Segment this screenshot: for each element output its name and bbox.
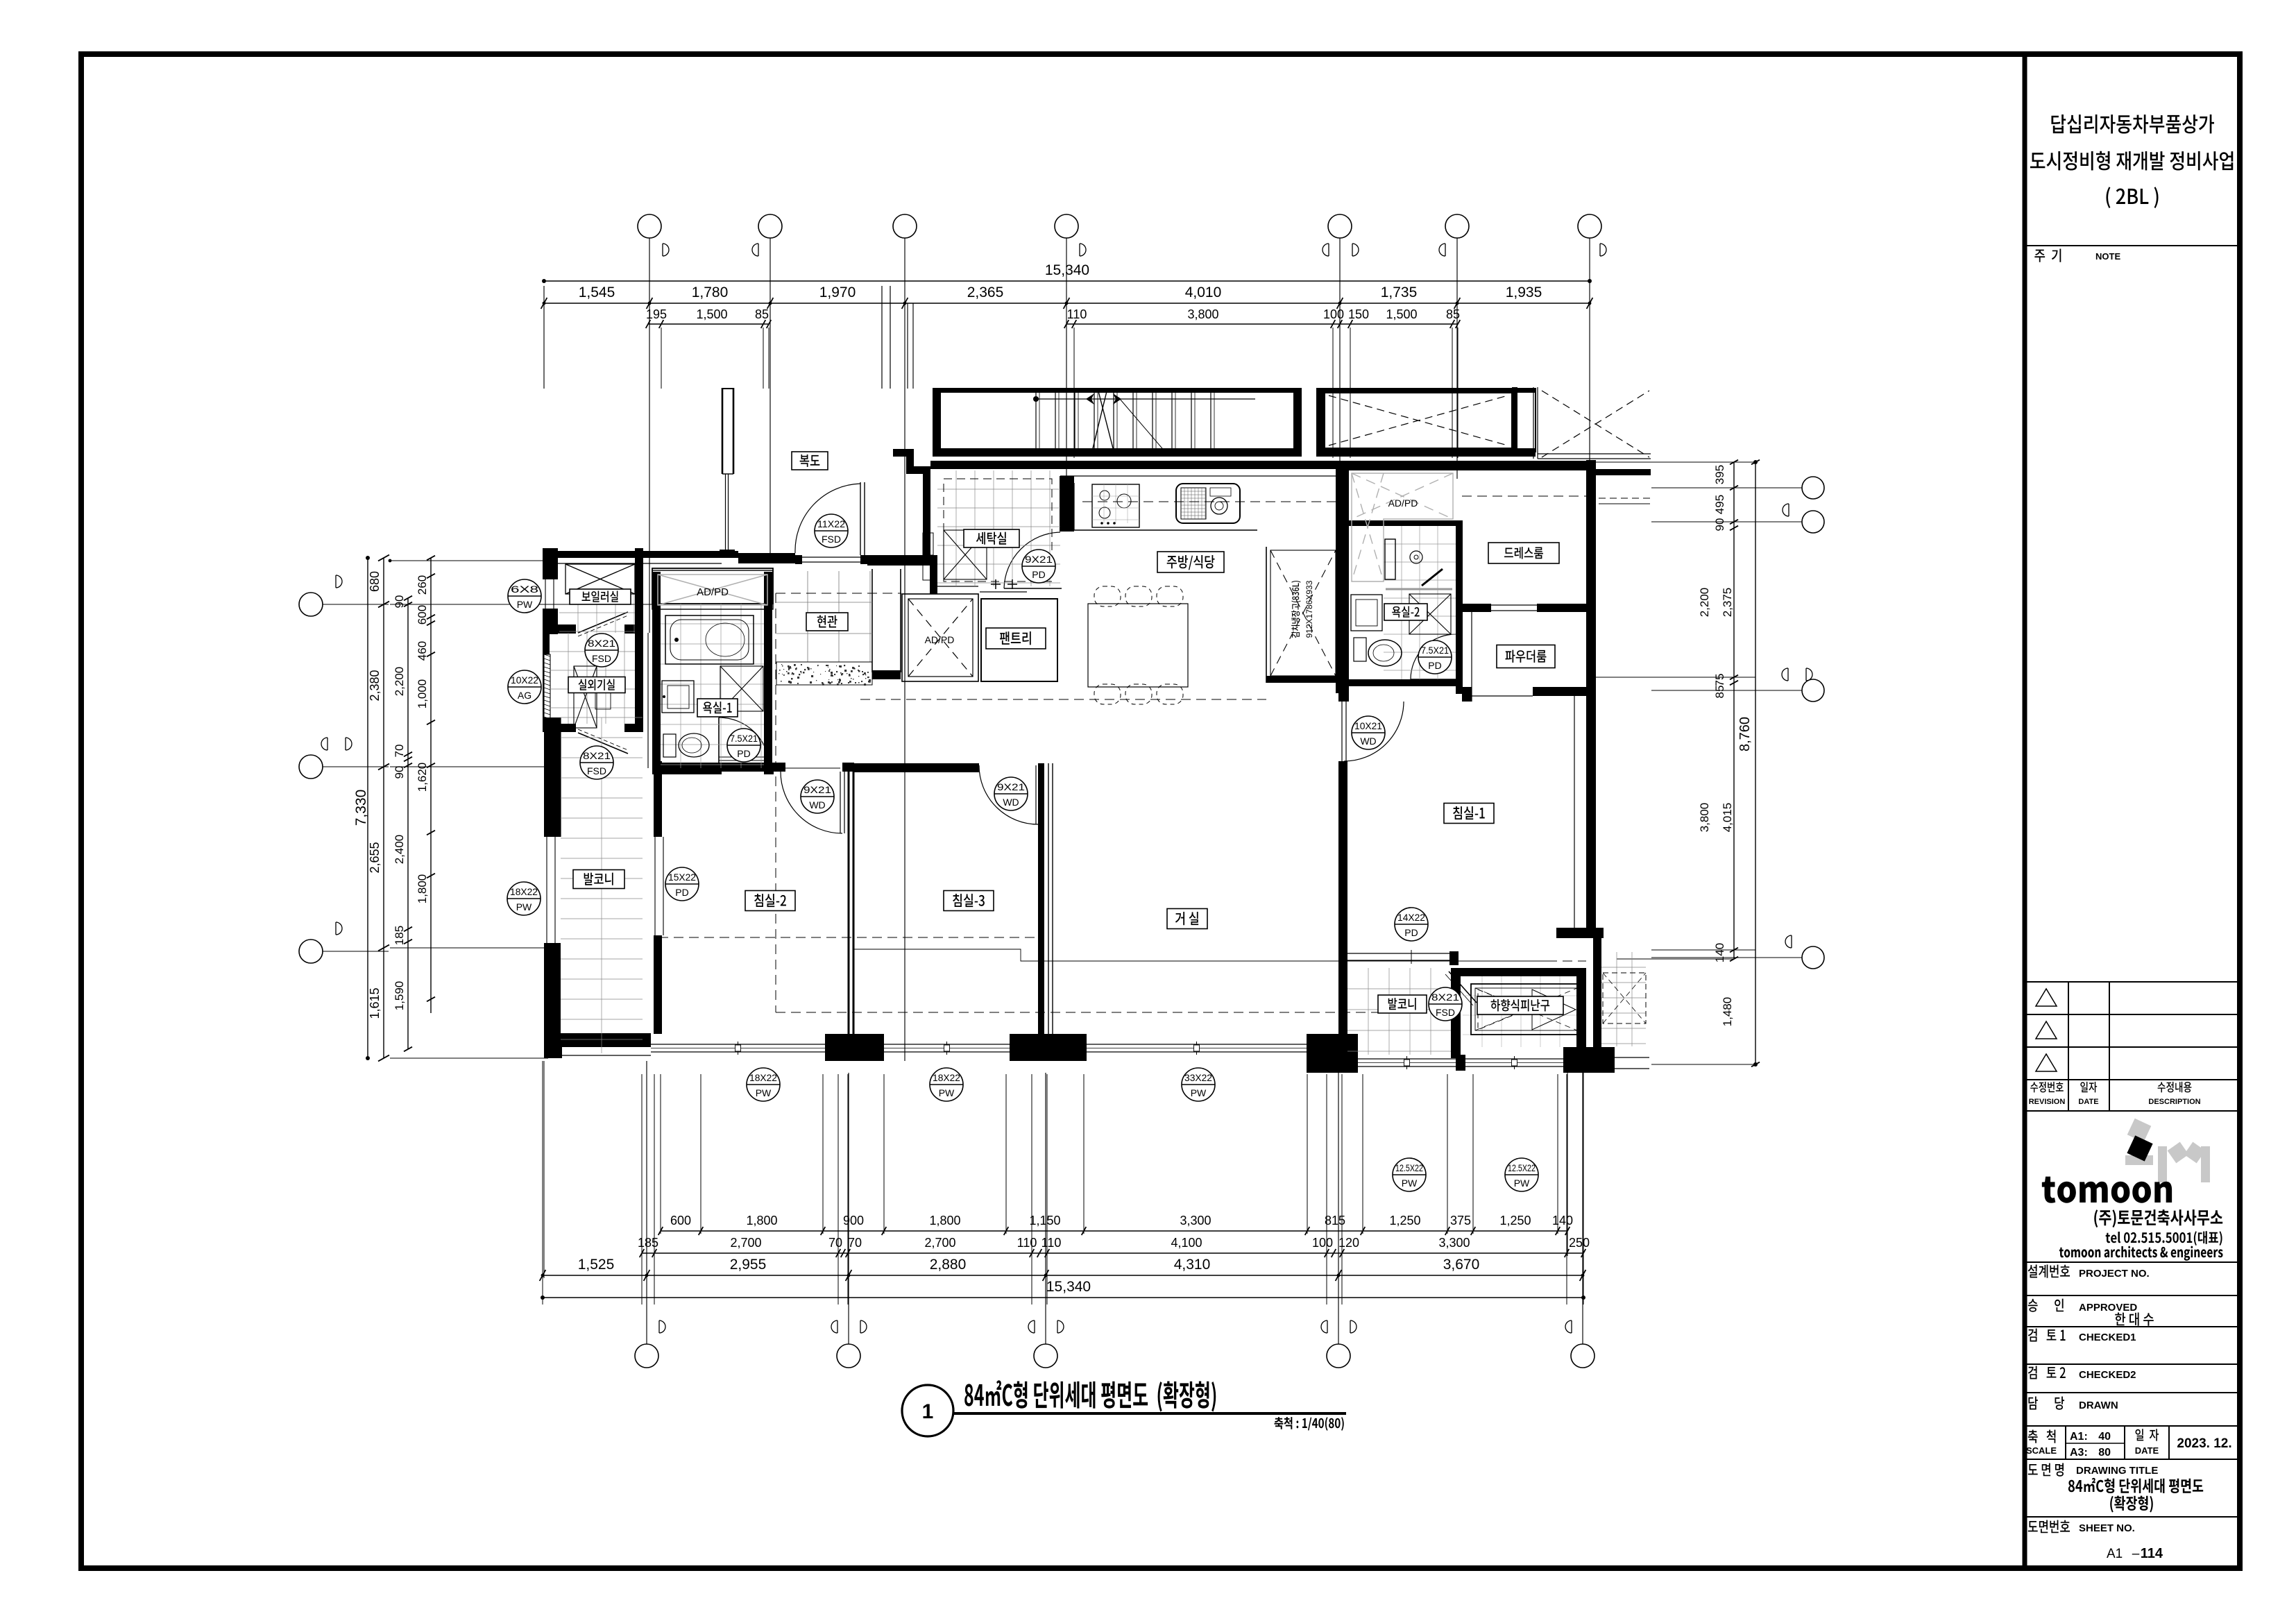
svg-text:PW: PW [1402,1178,1418,1189]
svg-text:7.5X21: 7.5X21 [1421,645,1449,656]
svg-text:85: 85 [755,307,769,321]
svg-text:10X21: 10X21 [1354,720,1382,731]
svg-text:2,400: 2,400 [393,835,406,865]
svg-text:DATE: DATE [2135,1445,2159,1456]
svg-text:2023. 12.: 2023. 12. [2177,1436,2231,1451]
svg-text:18X22: 18X22 [510,886,538,897]
svg-text:395: 395 [1713,465,1726,484]
svg-text:2,200: 2,200 [393,667,406,697]
svg-text:PW: PW [939,1087,955,1098]
svg-text:14X22: 14X22 [1397,912,1425,923]
svg-text:2,655: 2,655 [368,842,382,873]
svg-text:1,000: 1,000 [416,679,429,709]
svg-text:85: 85 [1446,307,1460,321]
svg-text:7,330: 7,330 [353,790,369,826]
svg-text:70: 70 [848,1236,862,1250]
svg-text:1,800: 1,800 [416,874,429,904]
svg-text:114: 114 [2141,1546,2163,1561]
svg-text:15,340: 15,340 [1046,1279,1091,1295]
svg-text:SCALE: SCALE [2026,1445,2057,1456]
svg-text:3,300: 3,300 [1180,1214,1211,1227]
svg-text:A1: A1 [2107,1547,2123,1561]
svg-text:495: 495 [1713,495,1726,514]
svg-text:9X21: 9X21 [997,781,1025,792]
svg-text:4,010: 4,010 [1185,284,1222,300]
svg-text:185: 185 [638,1236,658,1250]
svg-text:8,760: 8,760 [1737,717,1753,751]
svg-text:15,340: 15,340 [1045,262,1089,278]
svg-text:7.5X21: 7.5X21 [730,733,758,744]
svg-text:250: 250 [1569,1236,1590,1250]
svg-text:AG: AG [518,690,532,701]
svg-text:140: 140 [1552,1214,1573,1227]
svg-text:CHECKED2: CHECKED2 [2079,1369,2136,1381]
svg-text:APPROVED: APPROVED [2079,1302,2137,1314]
svg-text:2,365: 2,365 [967,284,1004,300]
svg-text:REVISION: REVISION [2029,1098,2066,1106]
svg-text:3,800: 3,800 [1187,307,1218,321]
svg-text:110: 110 [1017,1236,1037,1250]
svg-text:PW: PW [1191,1087,1207,1098]
svg-text:912X1786X933: 912X1786X933 [1304,580,1314,638]
svg-text:2,380: 2,380 [368,670,382,701]
svg-text:100: 100 [1323,307,1344,321]
svg-text:A3:: A3: [2070,1447,2088,1459]
svg-text:PW: PW [516,901,532,912]
svg-text:3,670: 3,670 [1443,1257,1480,1273]
svg-text:4,015: 4,015 [1721,803,1734,833]
svg-text:PD: PD [1404,927,1418,938]
svg-text:WD: WD [1003,797,1019,808]
svg-text:15X22: 15X22 [668,872,696,883]
svg-text:WD: WD [809,799,825,810]
svg-text:2,375: 2,375 [1721,588,1734,618]
svg-text:1,590: 1,590 [393,981,406,1011]
svg-text:12.5X22: 12.5X22 [1395,1162,1423,1173]
svg-text:PD: PD [675,887,688,898]
svg-text:70: 70 [828,1236,842,1250]
svg-text:FSD: FSD [822,534,841,545]
svg-text:18X22: 18X22 [933,1072,960,1083]
svg-text:900: 900 [843,1214,864,1227]
svg-text:90: 90 [1713,518,1726,532]
svg-text:4,100: 4,100 [1171,1236,1202,1250]
svg-text:110: 110 [1067,307,1087,321]
svg-text:PD: PD [1428,660,1441,671]
svg-text:1,545: 1,545 [579,284,615,300]
svg-text:AD/PD: AD/PD [697,586,729,598]
svg-text:1,480: 1,480 [1721,997,1734,1027]
svg-text:PROJECT NO.: PROJECT NO. [2079,1268,2150,1280]
svg-text:CHECKED1: CHECKED1 [2079,1332,2136,1343]
svg-text:2,700: 2,700 [730,1236,761,1250]
svg-text:1,935: 1,935 [1506,284,1542,300]
svg-text:SHEET NO.: SHEET NO. [2079,1522,2135,1534]
svg-text:90: 90 [393,766,406,779]
svg-text:1,615: 1,615 [368,987,382,1019]
svg-text:1,500: 1,500 [1386,307,1417,321]
svg-text:3,800: 3,800 [1698,803,1711,833]
svg-text:PW: PW [756,1087,772,1098]
svg-text:375: 375 [1450,1214,1471,1227]
svg-text:4,310: 4,310 [1174,1257,1211,1273]
svg-text:185: 185 [393,926,406,945]
svg-text:PW: PW [517,599,533,610]
svg-text:110: 110 [1041,1236,1062,1250]
svg-text:FSD: FSD [592,653,611,664]
svg-text:DATE: DATE [2078,1098,2098,1106]
svg-text:1,800: 1,800 [746,1214,777,1227]
svg-text:PW: PW [1514,1178,1530,1189]
svg-text:140: 140 [1713,943,1726,962]
svg-text:8X21: 8X21 [583,750,611,761]
svg-text:1,500: 1,500 [696,307,727,321]
svg-text:FSD: FSD [1436,1007,1455,1018]
svg-text:600: 600 [670,1214,691,1227]
svg-text:1,780: 1,780 [692,284,729,300]
svg-text:600: 600 [416,605,429,624]
svg-text:DRAWN: DRAWN [2079,1400,2118,1411]
svg-text:1,525: 1,525 [578,1257,615,1273]
svg-text:260: 260 [416,575,429,595]
svg-text:85: 85 [1713,686,1726,699]
svg-text:100: 100 [1312,1236,1333,1250]
svg-text:AD/PD: AD/PD [1388,498,1418,509]
svg-text:120: 120 [1338,1236,1359,1250]
svg-text:1,970: 1,970 [819,284,856,300]
svg-text:DESCRIPTION: DESCRIPTION [2148,1098,2200,1106]
svg-text:150: 150 [1348,307,1369,321]
svg-text:40: 40 [2098,1431,2111,1443]
svg-text:6X8: 6X8 [511,584,538,595]
svg-text:PD: PD [737,748,750,759]
svg-text:1,250: 1,250 [1499,1214,1531,1227]
svg-text:12.5X22: 12.5X22 [1508,1162,1536,1173]
svg-text:195: 195 [646,307,667,321]
svg-text:460: 460 [416,641,429,661]
svg-text:NOTE: NOTE [2095,251,2120,262]
svg-text:1,150: 1,150 [1029,1214,1060,1227]
svg-text:DRAWING TITLE: DRAWING TITLE [2076,1465,2158,1477]
svg-text:FSD: FSD [587,765,606,776]
svg-text:18X22: 18X22 [749,1072,777,1083]
svg-text:2,955: 2,955 [730,1257,767,1273]
svg-text:9X21: 9X21 [803,784,831,795]
svg-text:8X21: 8X21 [1431,992,1459,1003]
svg-text:75: 75 [1713,674,1726,687]
svg-text:815: 815 [1325,1214,1345,1227]
svg-text:PD: PD [1032,569,1045,580]
svg-text:1,250: 1,250 [1389,1214,1420,1227]
svg-text:680: 680 [368,571,382,592]
svg-text:1,800: 1,800 [929,1214,960,1227]
svg-text:10X22: 10X22 [511,674,538,686]
svg-text:1,735: 1,735 [1381,284,1418,300]
svg-text:9X21: 9X21 [1025,554,1053,565]
svg-text:WD: WD [1360,736,1376,747]
svg-text:2,700: 2,700 [924,1236,955,1250]
svg-text:90: 90 [393,595,406,609]
svg-text:11X22: 11X22 [817,518,845,529]
svg-text:–: – [2132,1547,2140,1561]
svg-text:70: 70 [393,745,406,758]
svg-text:33X22: 33X22 [1184,1072,1212,1083]
svg-text:A1:: A1: [2070,1431,2088,1443]
svg-text:8X21: 8X21 [588,638,615,649]
svg-text:80: 80 [2098,1447,2111,1459]
svg-text:AD/PD: AD/PD [925,634,955,645]
svg-text:2,200: 2,200 [1698,588,1711,618]
svg-text:1: 1 [922,1400,934,1423]
svg-text:3,300: 3,300 [1438,1236,1470,1250]
svg-text:2,880: 2,880 [930,1257,967,1273]
